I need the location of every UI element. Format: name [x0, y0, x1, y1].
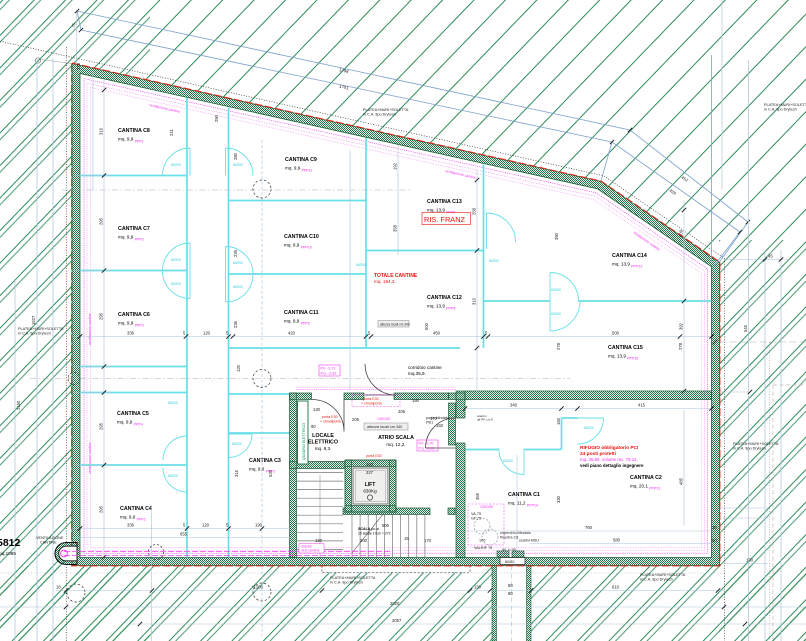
svg-text:CANTINA C6: CANTINA C6: [118, 312, 150, 318]
svg-text:altezza locali cm 340: altezza locali cm 340: [380, 323, 410, 327]
svg-text:in C.A. tipo Drytech: in C.A. tipo Drytech: [640, 578, 673, 582]
svg-text:485: 485: [679, 477, 684, 485]
svg-text:60/200: 60/200: [233, 163, 243, 167]
svg-text:CANTINA C4: CANTINA C4: [120, 506, 152, 512]
svg-text:30: 30: [712, 525, 717, 530]
svg-text:in C.A. tipo Drytech: in C.A. tipo Drytech: [18, 332, 51, 336]
svg-text:295: 295: [99, 312, 104, 320]
svg-text:45: 45: [768, 254, 773, 259]
svg-text:130: 130: [313, 407, 321, 412]
svg-text:140/140: 140/140: [377, 417, 390, 421]
svg-text:340: 340: [510, 403, 518, 408]
svg-text:CANTINA C3: CANTINA C3: [249, 458, 281, 464]
svg-text:CANTINA C5: CANTINA C5: [117, 411, 149, 417]
svg-text:109: 109: [679, 229, 684, 237]
svg-text:60/200: 60/200: [551, 312, 561, 316]
svg-text:ventilazione cantine: ventilazione cantine: [88, 442, 92, 474]
svg-text:80/80: 80/80: [505, 560, 515, 564]
svg-text:170: 170: [430, 416, 438, 421]
svg-text:vedi piano dettaglio ingegnere: vedi piano dettaglio ingegnere: [580, 463, 644, 468]
svg-text:500: 500: [424, 322, 429, 330]
svg-text:100: 100: [479, 539, 485, 543]
svg-text:160: 160: [366, 462, 374, 467]
svg-text:CANTINA C8: CANTINA C8: [118, 128, 150, 134]
svg-text:CANTINA C1: CANTINA C1: [508, 492, 540, 498]
svg-text:60/200: 60/200: [171, 163, 181, 167]
svg-text:336: 336: [127, 331, 135, 336]
svg-text:VENTILAZIONE: VENTILAZIONE: [36, 536, 64, 540]
svg-text:CANTINA C7: CANTINA C7: [118, 226, 150, 232]
svg-text:PLATEA+MURI+SOLETTA: PLATEA+MURI+SOLETTA: [764, 103, 806, 107]
svg-text:630Kg: 630Kg: [363, 489, 377, 494]
svg-text:278: 278: [556, 342, 561, 350]
svg-text:60/200: 60/200: [233, 261, 243, 265]
svg-text:330: 330: [556, 495, 561, 503]
svg-text:da PF, cm 9: da PF, cm 9: [477, 418, 493, 422]
svg-text:80: 80: [508, 583, 513, 588]
svg-text:358: 358: [393, 224, 398, 232]
svg-text:190: 190: [412, 398, 420, 403]
svg-text:278: 278: [678, 342, 683, 350]
svg-text:mq. 184,3.: mq. 184,3.: [374, 279, 396, 284]
svg-text:LIFT: LIFT: [365, 482, 376, 488]
svg-text:CANTINA C2: CANTINA C2: [630, 475, 662, 481]
svg-text:200: 200: [360, 538, 368, 543]
svg-text:60/200: 60/200: [356, 263, 366, 267]
svg-text:porta E30: porta E30: [366, 454, 382, 458]
svg-text:60/200: 60/200: [551, 288, 561, 292]
svg-text:60/200: 60/200: [489, 259, 499, 263]
svg-text:170: 170: [424, 538, 432, 543]
svg-text:LOCALE: LOCALE: [312, 433, 334, 439]
svg-text:310: 310: [472, 297, 477, 305]
svg-text:205: 205: [352, 417, 360, 422]
svg-text:80: 80: [508, 591, 513, 596]
svg-text:PLATEA+MURI+SOLETTA: PLATEA+MURI+SOLETTA: [733, 442, 779, 446]
svg-text:520: 520: [268, 469, 273, 477]
svg-text:CANTINA C10: CANTINA C10: [284, 234, 319, 240]
svg-text:VA.75: VA.75: [471, 512, 481, 516]
svg-text:236: 236: [233, 320, 238, 328]
svg-text:130: 130: [746, 558, 754, 563]
svg-text:150: 150: [556, 417, 561, 425]
svg-text:280: 280: [233, 152, 238, 160]
svg-text:2020: 2020: [390, 601, 400, 606]
svg-text:+ chiudiporta: + chiudiporta: [320, 420, 341, 424]
svg-text:VALRIF 75: VALRIF 75: [474, 546, 492, 550]
svg-text:500: 500: [612, 331, 620, 336]
svg-text:290: 290: [214, 114, 219, 122]
svg-text:60/200: 60/200: [503, 459, 513, 463]
svg-text:CANTINA C12: CANTINA C12: [427, 295, 462, 301]
svg-text:258: 258: [472, 207, 477, 215]
svg-text:CANTINA C15: CANTINA C15: [608, 345, 643, 351]
svg-text:mq. 8,3.: mq. 8,3.: [315, 446, 332, 451]
svg-text:PLATEA+MURI+SOLETTA: PLATEA+MURI+SOLETTA: [363, 108, 409, 112]
svg-text:RIFUGIO obbligatorio PCI: RIFUGIO obbligatorio PCI: [580, 445, 639, 451]
svg-text:316: 316: [99, 127, 104, 135]
svg-text:420: 420: [288, 331, 296, 336]
svg-text:15: 15: [404, 536, 409, 541]
svg-text:500: 500: [382, 523, 390, 528]
svg-text:ventilazione cantine: ventilazione cantine: [88, 313, 92, 345]
svg-text:mq. 12,2.: mq. 12,2.: [386, 442, 405, 447]
svg-text:ATRIO SCALA: ATRIO SCALA: [378, 435, 414, 441]
svg-text:vert.cantine: vert.cantine: [301, 549, 320, 553]
svg-text:finestra C8: finestra C8: [500, 536, 518, 540]
svg-text:295: 295: [99, 217, 104, 225]
svg-text:192: 192: [393, 162, 398, 170]
svg-text:PLATEA+MURI+SOLETTA: PLATEA+MURI+SOLETTA: [18, 327, 64, 331]
svg-text:SCALA po-zi: SCALA po-zi: [358, 527, 379, 531]
svg-text:120: 120: [202, 523, 210, 528]
svg-text:+ chiudiporta: + chiudiporta: [361, 402, 382, 406]
svg-text:760: 760: [585, 525, 593, 530]
svg-text:190: 190: [255, 523, 263, 528]
svg-text:610: 610: [612, 585, 620, 590]
svg-text:90: 90: [311, 424, 316, 429]
svg-text:60/200: 60/200: [168, 401, 178, 405]
svg-text:545: 545: [743, 324, 748, 332]
svg-text:295: 295: [99, 422, 104, 430]
svg-text:mq.1085: mq.1085: [0, 551, 16, 556]
svg-text:in C.A. tipo Drytech: in C.A. tipo Drytech: [330, 581, 363, 585]
svg-text:2057: 2057: [392, 618, 402, 623]
svg-text:60/200: 60/200: [171, 282, 181, 286]
svg-text:120/190: 120/190: [480, 505, 493, 509]
svg-text:120: 120: [236, 364, 241, 372]
svg-text:450: 450: [433, 331, 441, 336]
svg-text:PB1: PB1: [426, 421, 433, 425]
svg-text:227: 227: [366, 470, 374, 475]
svg-text:mq. 36,86, volume mc. 78,14.: mq. 36,86, volume mc. 78,14.: [580, 457, 638, 462]
svg-text:130: 130: [315, 538, 323, 543]
svg-text:P.G. -2,63: P.G. -2,63: [419, 447, 435, 451]
svg-text:16 alzate 17cm = 272: 16 alzate 17cm = 272: [358, 532, 391, 536]
svg-text:1527: 1527: [31, 315, 36, 325]
svg-text:315: 315: [234, 469, 239, 477]
svg-text:355: 355: [475, 492, 480, 500]
svg-text:241: 241: [169, 128, 174, 136]
svg-text:CANTINA C9: CANTINA C9: [285, 157, 317, 163]
svg-text:5812: 5812: [0, 537, 21, 549]
svg-text:QUADRO ELETTRICO: QUADRO ELETTRICO: [302, 423, 306, 460]
svg-text:corridoio cantine: corridoio cantine: [408, 365, 442, 370]
svg-text:*1200: *1200: [252, 585, 264, 590]
svg-text:CANTINA C11: CANTINA C11: [284, 310, 319, 316]
svg-text:mq.35,9.: mq.35,9.: [408, 371, 426, 376]
svg-text:336: 336: [127, 523, 135, 528]
svg-text:390: 390: [554, 232, 559, 240]
svg-text:580: 580: [613, 538, 621, 543]
svg-text:PLATEA+MURI+SOLETTA: PLATEA+MURI+SOLETTA: [330, 576, 376, 580]
svg-text:P.F. -2,70: P.F. -2,70: [419, 442, 434, 446]
svg-text:60/200: 60/200: [584, 426, 594, 430]
svg-text:CANTINE: CANTINE: [40, 541, 57, 545]
svg-text:205: 205: [398, 409, 406, 414]
svg-text:in C.A. tipo Drytech: in C.A. tipo Drytech: [733, 447, 766, 451]
svg-text:60/200: 60/200: [171, 258, 181, 262]
svg-text:in C.A. tipo Drytech: in C.A. tipo Drytech: [764, 108, 797, 112]
svg-text:236: 236: [233, 249, 238, 257]
svg-text:P.F. -2,73: P.F. -2,73: [321, 367, 336, 371]
svg-text:coperchio blindato: coperchio blindato: [500, 531, 531, 535]
svg-text:GF.75: GF.75: [471, 517, 481, 521]
svg-text:porta E30: porta E30: [322, 415, 338, 419]
svg-text:30: 30: [712, 538, 717, 543]
svg-text:273: 273: [76, 62, 81, 70]
svg-text:in C.A. tipo Drytech: in C.A. tipo Drytech: [363, 113, 396, 117]
svg-text:PLATEA+MURI+SOLETTA: PLATEA+MURI+SOLETTA: [640, 573, 686, 577]
svg-text:392: 392: [679, 322, 684, 330]
svg-text:60/200: 60/200: [232, 442, 242, 446]
svg-text:scalini MSU: scalini MSU: [519, 539, 539, 543]
svg-text:porta E30: porta E30: [363, 397, 379, 401]
svg-text:CANTINA C13: CANTINA C13: [427, 199, 462, 205]
svg-text:ELETTRICO: ELETTRICO: [308, 440, 338, 446]
svg-text:altezza locali cm 340: altezza locali cm 340: [367, 425, 402, 429]
svg-text:295: 295: [99, 505, 104, 513]
svg-text:2150: 2150: [16, 400, 21, 410]
svg-text:CANTINA C14: CANTINA C14: [612, 253, 647, 259]
svg-text:150: 150: [436, 423, 444, 428]
svg-text:655: 655: [180, 532, 188, 537]
svg-text:120: 120: [203, 331, 211, 336]
svg-text:60/200: 60/200: [168, 474, 178, 478]
svg-text:RIS. FRANZ: RIS. FRANZ: [424, 215, 466, 224]
svg-text:P.G. -2,83: P.G. -2,83: [321, 372, 337, 376]
svg-text:130: 130: [474, 585, 482, 590]
svg-text:415: 415: [638, 403, 646, 408]
svg-text:18: 18: [56, 585, 61, 590]
svg-text:60/200: 60/200: [233, 285, 243, 289]
